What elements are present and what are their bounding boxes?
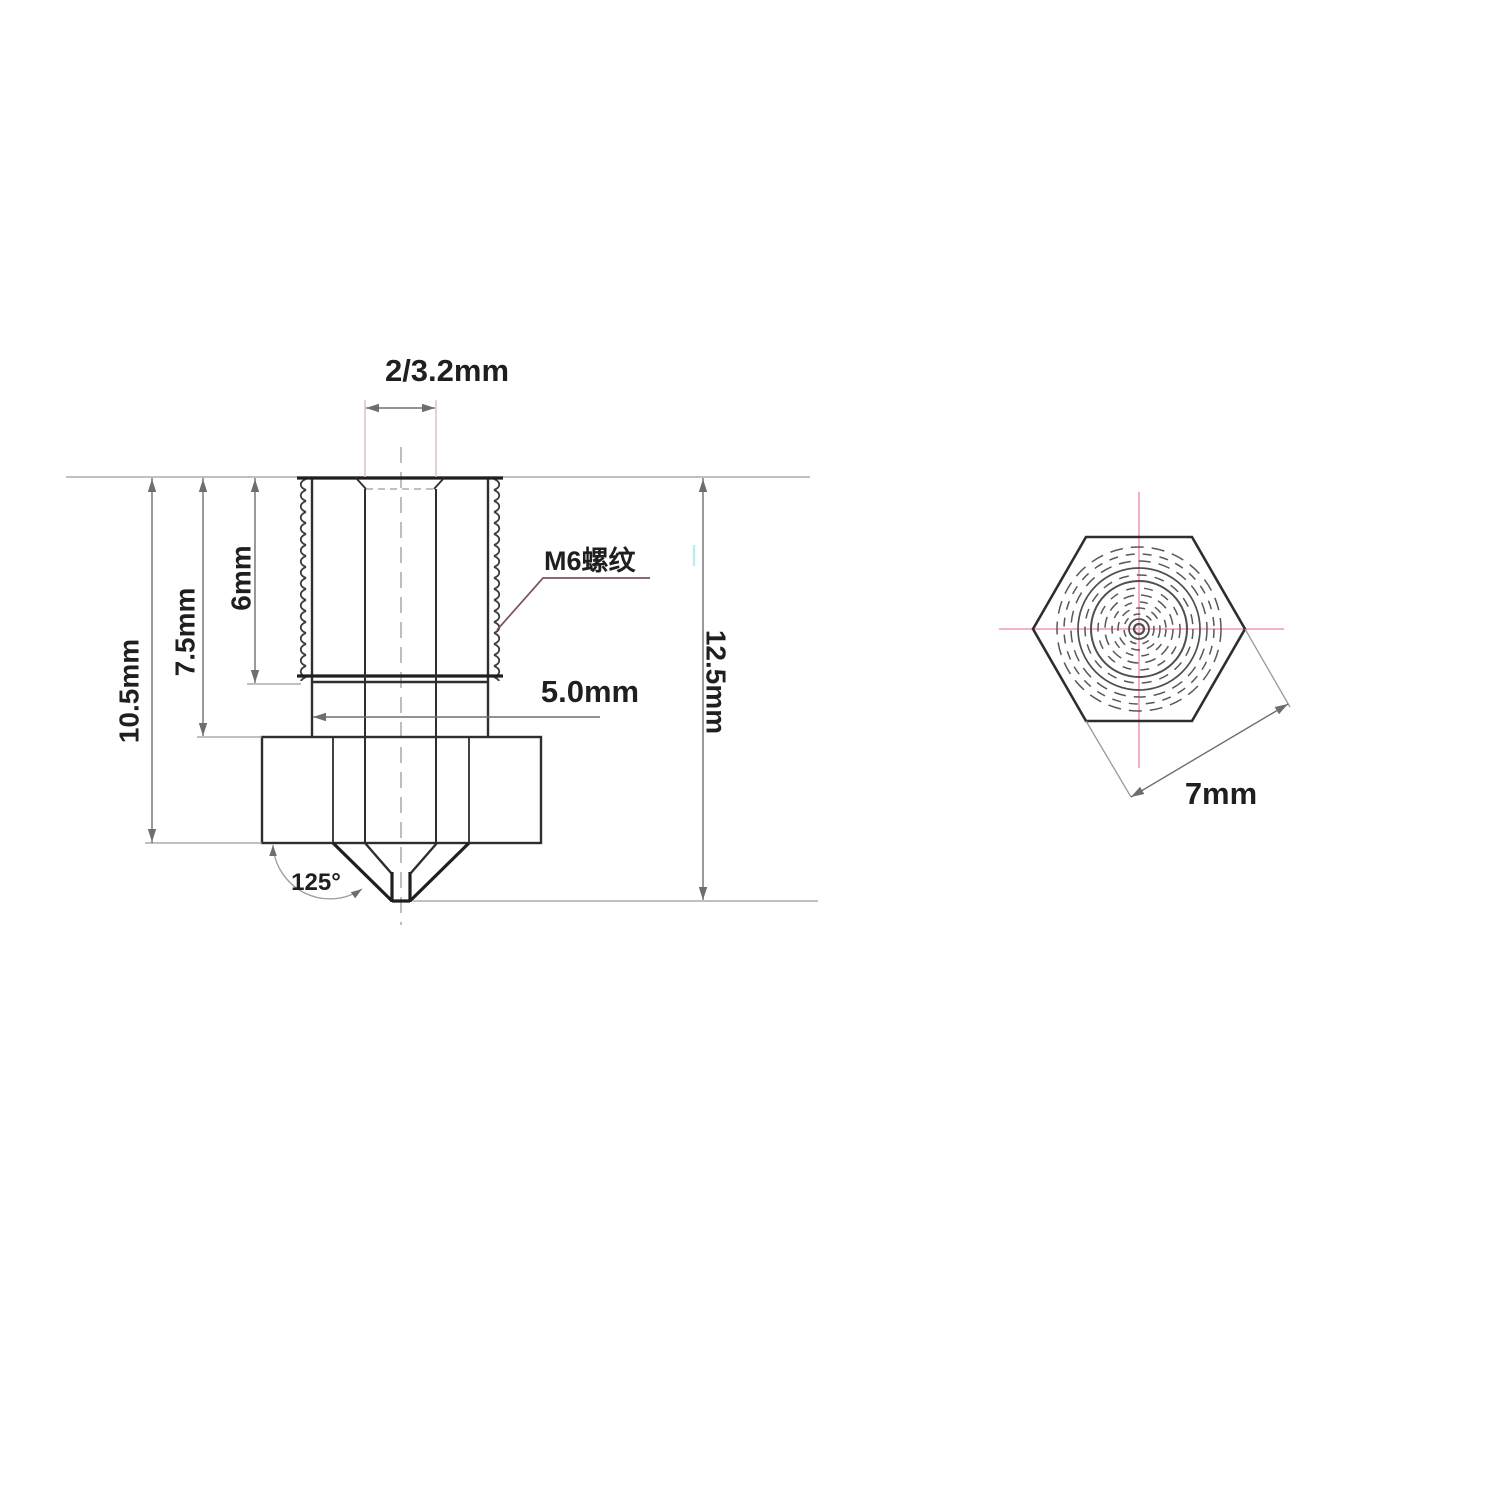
label-overall-length: 12.5mm: [701, 630, 732, 734]
arrow-10-5-bottom: [148, 829, 156, 842]
dimension-overall-length: 12.5mm: [694, 478, 732, 900]
label-thread-spec: M6螺纹: [544, 546, 637, 576]
drawing-canvas: 10.5mm 7.5mm 6mm 12.5mm: [0, 0, 1500, 1500]
label-upper-length: 7.5mm: [170, 588, 201, 677]
thread-hatch-right: [491, 479, 503, 681]
arrow-hex-left: [1129, 787, 1144, 801]
neck: [312, 682, 488, 737]
dimension-thread-length: 6mm: [226, 478, 260, 683]
threaded-barrel: [297, 478, 503, 682]
arrow-7-5-bottom: [199, 723, 207, 736]
side-view: 10.5mm 7.5mm 6mm 12.5mm: [66, 353, 818, 925]
arrow-6-bottom: [251, 670, 259, 683]
thread-hatch-left: [297, 479, 309, 681]
label-hex-across-flats: 7mm: [1185, 776, 1257, 811]
thread-callout: M6螺纹: [497, 546, 650, 630]
cone-outer-left: [333, 843, 392, 901]
dimension-body-length: 10.5mm: [114, 478, 157, 843]
cone-inner-left: [365, 843, 392, 874]
arrow-angle-start: [269, 845, 277, 856]
label-body-length: 10.5mm: [114, 639, 145, 743]
hex-ext-line-left: [1086, 721, 1131, 797]
arrow-bore-right: [422, 404, 435, 412]
hex-ext-line-right: [1245, 629, 1290, 707]
thread-leader-line: [497, 578, 650, 630]
bore-chamfer-left: [356, 478, 366, 489]
arrow-12-5-top: [699, 479, 707, 492]
arrow-6-top: [251, 479, 259, 492]
cone-inner-right: [410, 843, 437, 874]
tip-angle-annotation: 125°: [269, 845, 364, 899]
nozzle-technical-drawing: 10.5mm 7.5mm 6mm 12.5mm: [0, 0, 1500, 1500]
cone-outer-right: [410, 843, 469, 901]
label-neck-diameter: 5.0mm: [541, 674, 639, 709]
label-tip-angle: 125°: [291, 869, 341, 896]
arrow-angle-end: [351, 886, 364, 899]
label-thread-length: 6mm: [226, 545, 257, 610]
arrow-12-5-bottom: [699, 887, 707, 900]
bore-chamfer-right: [434, 478, 444, 489]
end-view: 7mm: [999, 492, 1290, 811]
dimension-bore-diameter: 2/3.2mm: [365, 353, 509, 477]
arrow-10-5-top: [148, 479, 156, 492]
arrow-bore-left: [366, 404, 379, 412]
arrow-7-5-top: [199, 479, 207, 492]
label-bore-diameter: 2/3.2mm: [385, 353, 509, 388]
arrow-neck-left: [313, 713, 326, 721]
dimension-upper-length: 7.5mm: [170, 478, 208, 736]
